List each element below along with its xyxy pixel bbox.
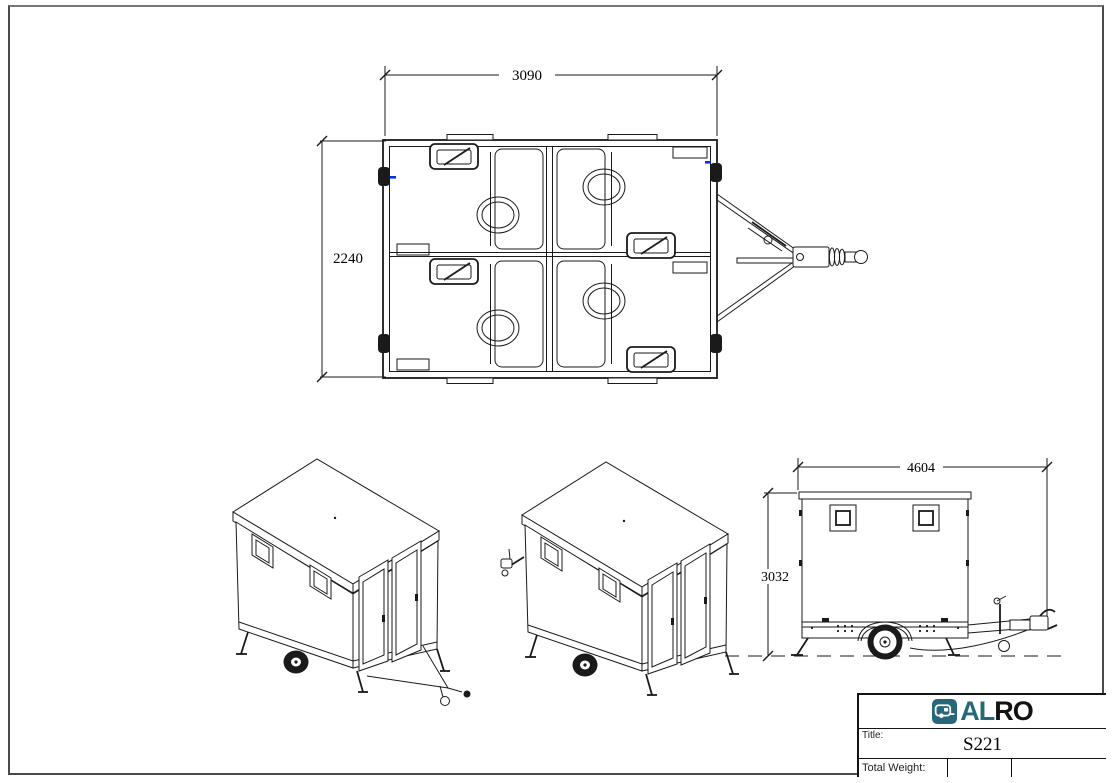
coupling-body — [793, 247, 829, 267]
iso-view-rear — [501, 462, 739, 695]
handbrake-lever — [748, 222, 786, 251]
iso-jockey-wheel — [441, 697, 450, 706]
iso-drawbar — [501, 549, 524, 576]
roof-rail-tab — [447, 378, 493, 384]
iso-coupling-head — [501, 559, 512, 568]
roof-rail-tab — [608, 135, 657, 141]
roof-rail-tab — [447, 135, 493, 141]
coupling-bellows — [829, 248, 844, 266]
roof-hatch — [627, 233, 675, 258]
hinge-latch — [710, 163, 722, 182]
logo-text-ro: RO — [994, 696, 1033, 726]
alro-logo: ALRO — [932, 699, 1033, 724]
iso-coupling-ball — [464, 691, 471, 698]
roof-rail-tab — [608, 378, 657, 384]
dim-label-top-width: 3090 — [512, 68, 542, 84]
dim-label-side-height: 3032 — [761, 570, 789, 585]
side-hinge-mark — [966, 560, 969, 566]
title-value: S221 — [859, 734, 1106, 756]
title-block: ALRO Title: S221 Total Weight: — [857, 693, 1106, 777]
side-roof-cap — [799, 492, 971, 499]
side-hinge-mark — [799, 560, 802, 566]
chassis-tab — [941, 618, 948, 622]
technical-drawing-canvas: 3090 2240 — [0, 0, 1114, 783]
drawbar-plate — [737, 258, 799, 263]
dimension-top-height: 2240 — [317, 136, 386, 382]
caravan-icon — [932, 699, 957, 724]
support-leg — [797, 638, 808, 655]
dim-label-side-length: 4604 — [907, 461, 935, 476]
logo-text-al: AL — [960, 696, 994, 726]
dim-label-top-height: 2240 — [333, 251, 363, 267]
top-view — [378, 135, 722, 384]
coupling-neck — [1010, 620, 1030, 630]
side-window — [830, 505, 856, 531]
side-body — [802, 499, 968, 622]
title-block-title-row: Title: S221 — [859, 728, 1106, 758]
chassis-tab — [822, 618, 829, 622]
logo-wordmark: ALRO — [960, 699, 1033, 724]
iso-jockey-wheel — [502, 570, 508, 576]
roof-hatch — [627, 347, 675, 372]
dimension-side-height: 3032 — [751, 488, 799, 661]
title-block-weight-row: Total Weight: — [859, 758, 1106, 777]
dimension-top-width: 3090 — [380, 66, 722, 136]
title-block-extra-cell — [1011, 759, 1106, 777]
roof-hatch — [430, 259, 478, 284]
iso-view-front — [233, 459, 471, 706]
side-wheel — [871, 628, 900, 657]
hinge-latch — [378, 167, 390, 186]
hinge-latch — [710, 334, 722, 353]
side-hinge-mark — [799, 510, 802, 516]
total-weight-label: Total Weight: — [859, 759, 947, 777]
side-hinge-mark — [966, 510, 969, 516]
hinge-latch — [378, 334, 390, 353]
coupling-head — [1030, 616, 1048, 630]
jockey-wheel — [999, 641, 1010, 652]
blue-marker — [705, 161, 711, 164]
blue-marker — [390, 176, 396, 179]
top-view-drawbar — [717, 194, 868, 322]
support-leg — [946, 638, 954, 655]
coupling-ball — [855, 251, 868, 264]
drawing-page: 3090 2240 — [0, 0, 1114, 783]
roof-hatch — [430, 144, 478, 169]
side-window — [913, 505, 939, 531]
title-block-logo-row: ALRO — [859, 695, 1106, 728]
total-weight-value-cell — [947, 759, 1011, 777]
